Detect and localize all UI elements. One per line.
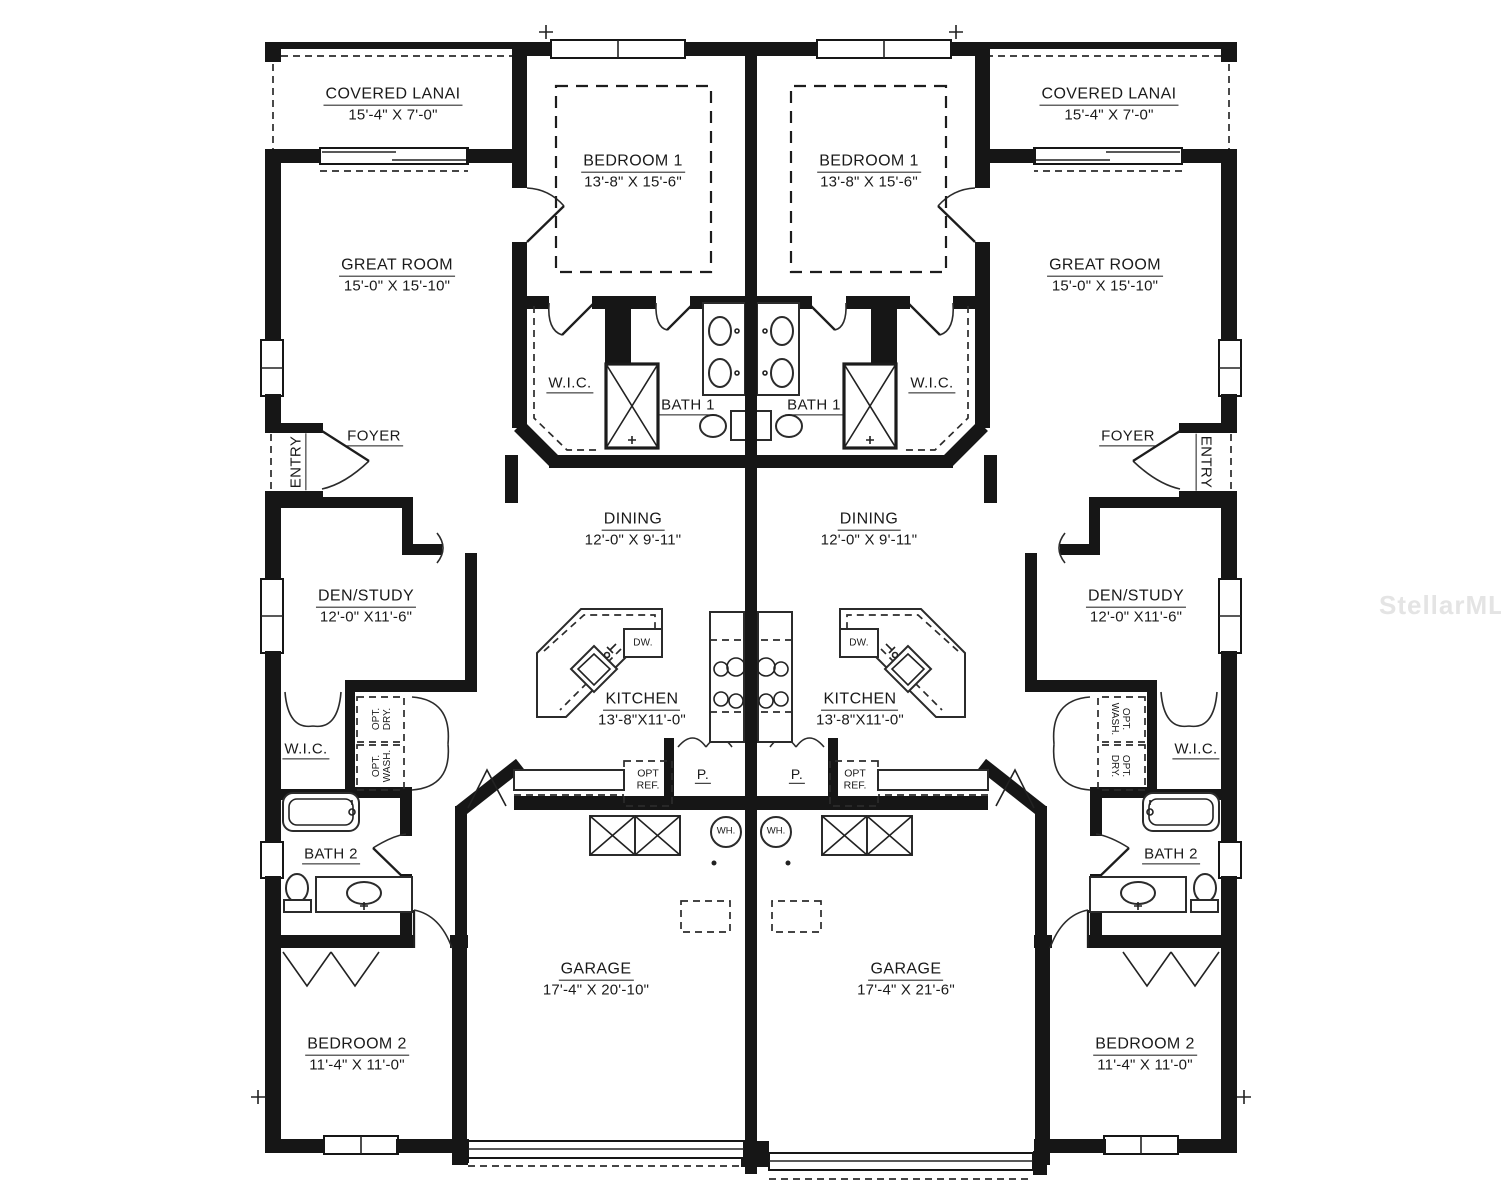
room-dims: 11'-4" X 11'-0": [305, 1057, 409, 1074]
room-name: DINING: [838, 511, 900, 531]
room-name: COVERED LANAI: [1039, 86, 1178, 106]
water-heater-label-left: WH.: [717, 827, 735, 838]
room-label-great-room-left: GREAT ROOM 15'-0" X 15'-10": [339, 257, 455, 296]
room-name: COVERED LANAI: [323, 86, 462, 106]
room-dims: 12'-0" X 9'-11": [821, 532, 918, 549]
room-label-bedroom1-right: BEDROOM 1 13'-8" X 15'-6": [817, 153, 921, 192]
room-label-den-study-right: DEN/STUDY 12'-0" X11'-6": [1086, 588, 1186, 627]
room-dims: 12'-0" X 9'-11": [585, 532, 682, 549]
room-dims: 17'-4" X 20'-10": [543, 982, 649, 999]
room-label-foyer-right: FOYER: [1099, 427, 1157, 446]
room-name: GREAT ROOM: [339, 257, 455, 277]
room-label-bath2-right: BATH 2: [1142, 845, 1200, 864]
floor-plan-linework: [0, 0, 1501, 1200]
room-dims: 15'-0" X 15'-10": [1047, 278, 1163, 295]
room-name: GARAGE: [869, 961, 944, 981]
room-dims: 12'-0" X11'-6": [1086, 609, 1186, 626]
water-heater-label-right: WH.: [767, 827, 785, 838]
room-name: ENTRY: [1195, 434, 1214, 491]
garage-door-left: [455, 1139, 744, 1166]
room-dims: 11'-4" X 11'-0": [1093, 1057, 1197, 1074]
room-label-covered-lanai-right: COVERED LANAI 15'-4" X 7'-0": [1039, 86, 1178, 125]
stellar-mls-watermark: StellarMLS: [1379, 590, 1501, 621]
room-name: BEDROOM 1: [581, 153, 685, 173]
pantry-label-left: P.: [695, 766, 711, 784]
opt-washer-label-left: OPT. WASH.: [371, 746, 393, 786]
pantry-label-right: P.: [789, 766, 805, 784]
room-name: W.I.C.: [1172, 740, 1219, 759]
fixture-name: OPT. DRY.: [371, 708, 393, 730]
room-name: BATH 1: [785, 396, 843, 415]
room-name: DEN/STUDY: [316, 588, 416, 608]
room-name: GREAT ROOM: [1047, 257, 1163, 277]
room-dims: 13'-8"X11'-0": [816, 712, 904, 729]
fixture-name: OPT. DRY.: [1109, 755, 1131, 777]
room-label-kitchen-right: KITCHEN 13'-8"X11'-0": [816, 691, 904, 730]
room-name: BATH 2: [302, 845, 360, 864]
room-dims: 13'-8"X11'-0": [598, 712, 686, 729]
room-name: KITCHEN: [603, 691, 680, 711]
room-label-bath1-right: BATH 1: [785, 396, 843, 415]
room-label-wic-upper-right: W.I.C.: [908, 374, 955, 393]
room-name: GARAGE: [559, 961, 634, 981]
room-name: FOYER: [1099, 427, 1157, 446]
fixture-name: DW.: [633, 637, 653, 648]
room-label-foyer-left: FOYER: [345, 427, 403, 446]
fixture-name: DW.: [849, 637, 869, 648]
room-label-covered-lanai-left: COVERED LANAI 15'-4" X 7'-0": [323, 86, 462, 125]
room-label-garage-left: GARAGE 17'-4" X 20'-10": [543, 961, 649, 1000]
room-name: DEN/STUDY: [1086, 588, 1186, 608]
room-label-bath2-left: BATH 2: [302, 845, 360, 864]
room-label-wic-lower-right: W.I.C.: [1172, 740, 1219, 759]
room-label-entry-left: ENTRY: [287, 434, 306, 491]
room-label-bedroom2-right: BEDROOM 2 11'-4" X 11'-0": [1093, 1036, 1197, 1075]
room-label-bedroom1-left: BEDROOM 1 13'-8" X 15'-6": [581, 153, 685, 192]
room-name: BATH 2: [1142, 845, 1200, 864]
room-name: BEDROOM 2: [305, 1036, 409, 1056]
room-name: P.: [789, 766, 805, 784]
fixture-name: WH.: [767, 826, 785, 837]
room-dims: 13'-8" X 15'-6": [817, 174, 921, 191]
room-name: BEDROOM 2: [1093, 1036, 1197, 1056]
room-label-entry-right: ENTRY: [1195, 434, 1214, 491]
room-name: DINING: [602, 511, 664, 531]
dishwasher-label-left: DW.: [633, 637, 653, 649]
room-label-bedroom2-left: BEDROOM 2 11'-4" X 11'-0": [305, 1036, 409, 1075]
room-name: W.I.C.: [908, 374, 955, 393]
room-name: ENTRY: [287, 434, 306, 491]
room-name: BEDROOM 1: [817, 153, 921, 173]
fixture-name: OPT REF.: [844, 767, 867, 791]
fixture-name: OPT. WASH.: [1109, 703, 1131, 735]
opt-fridge-label-left: OPT REF.: [630, 768, 666, 791]
room-label-kitchen-left: KITCHEN 13'-8"X11'-0": [598, 691, 686, 730]
room-dims: 17'-4" X 21'-6": [857, 982, 955, 999]
room-dims: 12'-0" X11'-6": [316, 609, 416, 626]
floor-plan-page: COVERED LANAI 15'-4" X 7'-0" BEDROOM 1 1…: [0, 0, 1501, 1200]
room-label-wic-lower-left: W.I.C.: [282, 740, 329, 759]
opt-fridge-label-right: OPT REF.: [837, 768, 873, 791]
room-dims: 15'-4" X 7'-0": [323, 107, 462, 124]
fixture-name: OPT REF.: [637, 767, 660, 791]
fixture-name: WH.: [717, 826, 735, 837]
room-name: KITCHEN: [821, 691, 898, 711]
room-label-garage-right: GARAGE 17'-4" X 21'-6": [857, 961, 955, 1000]
room-dims: 13'-8" X 15'-6": [581, 174, 685, 191]
room-label-wic-upper-left: W.I.C.: [546, 374, 593, 393]
room-dims: 15'-0" X 15'-10": [339, 278, 455, 295]
fixture-name: OPT. WASH.: [371, 750, 393, 782]
opt-washer-label-right: OPT. WASH.: [1109, 699, 1131, 739]
opt-dryer-label-right: OPT. DRY.: [1109, 746, 1131, 786]
room-label-bath1-left: BATH 1: [659, 396, 717, 415]
room-label-dining-right: DINING 12'-0" X 9'-11": [821, 511, 918, 550]
room-label-great-room-right: GREAT ROOM 15'-0" X 15'-10": [1047, 257, 1163, 296]
room-label-den-study-left: DEN/STUDY 12'-0" X11'-6": [316, 588, 416, 627]
room-name: BATH 1: [659, 396, 717, 415]
room-name: FOYER: [345, 427, 403, 446]
party-wall: [741, 42, 769, 1174]
room-dims: 15'-4" X 7'-0": [1039, 107, 1178, 124]
room-label-dining-left: DINING 12'-0" X 9'-11": [585, 511, 682, 550]
room-name: P.: [695, 766, 711, 784]
opt-dryer-label-left: OPT. DRY.: [371, 699, 393, 739]
dishwasher-label-right: DW.: [849, 637, 869, 649]
room-name: W.I.C.: [282, 740, 329, 759]
garage-door-right: [769, 1151, 1047, 1179]
room-name: W.I.C.: [546, 374, 593, 393]
